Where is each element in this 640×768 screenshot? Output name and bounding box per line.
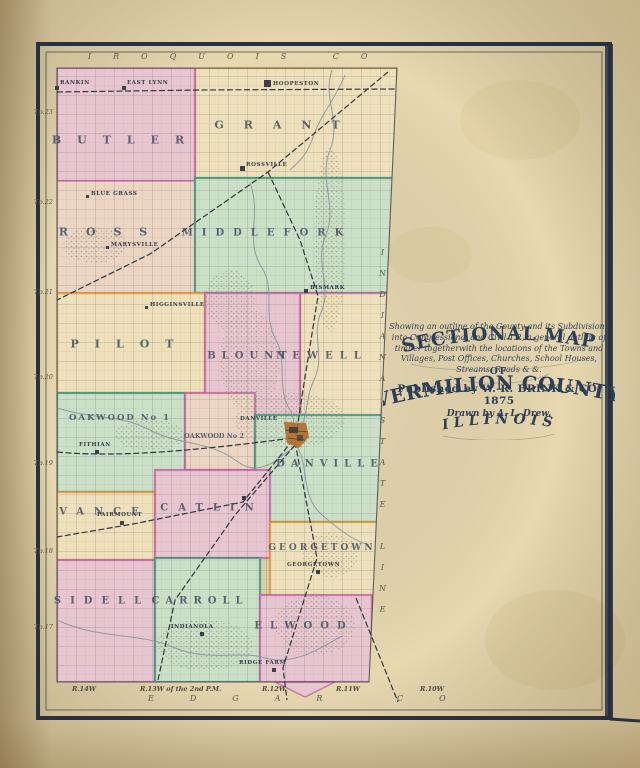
svg-text:SECTIONAL MAP: SECTIONAL MAP: [400, 324, 598, 358]
page-bottom-shade: [0, 718, 640, 768]
town-marker: [272, 668, 276, 672]
title-arcs: SECTIONAL MAP OF VERMILION COUNTY ILLINO…: [383, 318, 615, 440]
paper-stain: [485, 590, 625, 690]
town-marker: [304, 289, 308, 293]
town-marker: [95, 450, 99, 454]
town-marker: [122, 86, 126, 90]
paper-stain: [388, 227, 472, 283]
title-line-illinois: ILLINOIS: [440, 411, 559, 433]
title-line-sectional-map: SECTIONAL MAP: [400, 324, 598, 358]
frame-bleed-line: [610, 719, 640, 721]
title-line-vermilion-county: VERMILION COUNTY: [383, 372, 615, 413]
town-marker: [242, 496, 246, 500]
paper-stain: [460, 80, 580, 160]
town-marker: [106, 246, 109, 249]
town-marker: [55, 86, 59, 90]
page-left-shadow: [0, 0, 52, 768]
town-marker: [86, 195, 89, 198]
town-marker: [200, 632, 204, 636]
township-fills: [57, 68, 397, 682]
town-marker: [120, 521, 124, 525]
town-marker: [316, 570, 320, 574]
svg-text:ILLINOIS: ILLINOIS: [440, 411, 559, 433]
town-marker: [240, 166, 245, 171]
map-sheet: IROQUOIS CO EDGAR CO INDIANA STATE LINE …: [0, 0, 640, 768]
title-block: SECTIONAL MAP OF VERMILION COUNTY ILLINO…: [383, 318, 615, 419]
town-marker: [145, 306, 148, 309]
town-marker: [264, 80, 271, 87]
svg-text:VERMILION COUNTY: VERMILION COUNTY: [383, 372, 615, 413]
